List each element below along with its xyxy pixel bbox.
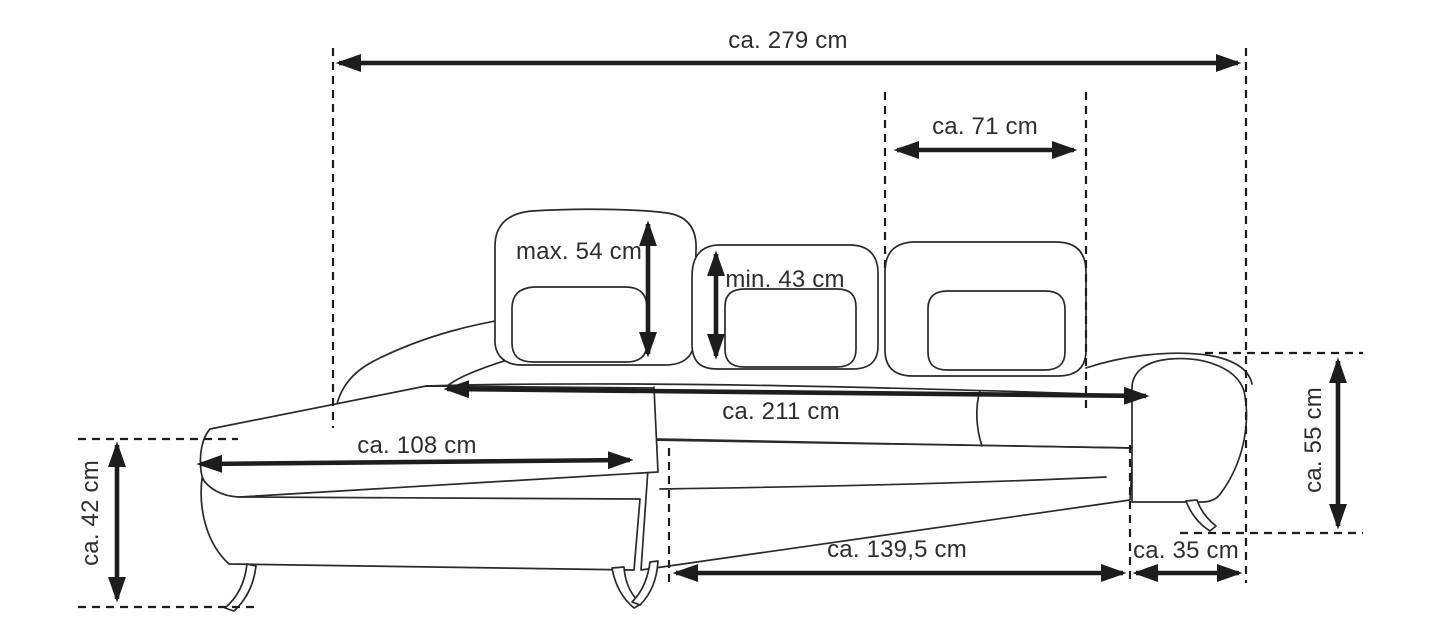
sofa-dimension-diagram: ca. 279 cm ca. 71 cm max. 54 cm min. 43 … <box>0 0 1445 640</box>
dimension-label-armrest-width: ca. 35 cm <box>1133 539 1239 563</box>
lumbar-pillow-left <box>512 287 647 362</box>
dimension-label-total-width: ca. 279 cm <box>728 29 847 53</box>
dimension-label-seat-height: ca. 42 cm <box>79 460 103 566</box>
right-armrest-leg <box>1186 500 1216 531</box>
dimension-label-backrest-height-max: max. 54 cm <box>516 240 642 264</box>
dimension-label-backrest-cushion-width: ca. 71 cm <box>932 115 1038 139</box>
chaise-front-left-leg <box>225 564 256 611</box>
dimension-label-backrest-height-min: min. 43 cm <box>725 268 844 292</box>
dimension-label-seat-width: ca. 211 cm <box>722 400 840 424</box>
dimension-label-chaise-length: ca. 108 cm <box>357 434 476 458</box>
right-armrest <box>1132 359 1246 502</box>
dimension-label-front-seat-width: ca. 139,5 cm <box>827 538 967 562</box>
lumbar-pillow-right <box>928 291 1065 370</box>
lumbar-pillow-middle <box>725 289 856 367</box>
dimension-label-armrest-height: ca. 55 cm <box>1302 387 1326 493</box>
seat-seam-middle <box>977 391 982 446</box>
